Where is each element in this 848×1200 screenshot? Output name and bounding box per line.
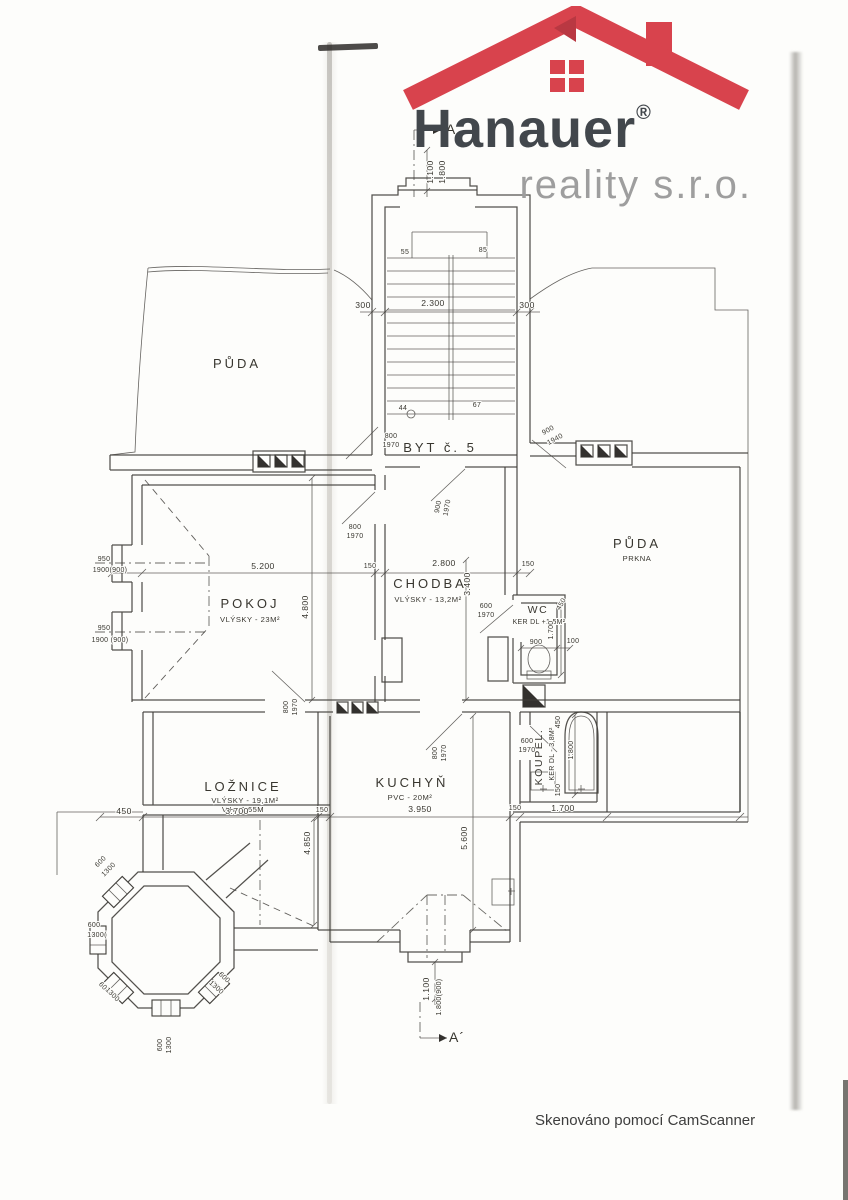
dimension-label: 450: [555, 716, 562, 729]
dimension-label: 600: [521, 738, 534, 745]
dimension-label: 1.800: [437, 160, 447, 184]
dimension-label: 1970: [383, 442, 400, 449]
builtin-cupboard: [382, 638, 402, 682]
room-sublabel-kuchyn: PVC - 20M²: [388, 793, 433, 802]
dimension-label: 1.100: [425, 160, 435, 184]
dimension-label: 450: [556, 597, 568, 611]
dimension-label: 1940: [546, 433, 564, 447]
dimension-label: 85: [479, 247, 487, 254]
dimension-label: 3.950: [408, 804, 432, 814]
dimension-label: 800: [283, 701, 290, 714]
room-sublabel-pokoj: VLÝSKY - 23M²: [220, 615, 280, 624]
room-sublabel-loznice: VLÝSKY - 19,1M²: [211, 796, 278, 805]
dimension-label: 600: [480, 603, 493, 610]
dimension-label: 800: [432, 747, 439, 760]
dimension-label: 900: [434, 500, 443, 514]
dimension-label: 150: [522, 561, 535, 568]
dimension-label: 300: [355, 300, 371, 310]
octagonal-turret: [90, 815, 318, 1016]
dimension-label: 800: [385, 433, 398, 440]
dimension-label: 1970: [443, 499, 453, 517]
dimension-label: 300: [519, 300, 535, 310]
dimension-label: 1970: [347, 533, 364, 540]
room-label-pokoj: POKOJ: [220, 596, 279, 611]
dimension-label: 1970: [478, 612, 495, 619]
room-label-puda-right: PŮDA: [613, 536, 661, 551]
room-label-wc: WC: [528, 604, 549, 616]
dimension-label: 3.700: [225, 806, 249, 816]
dimension-label: 600: [88, 922, 101, 929]
dimension-label: 900: [530, 639, 543, 646]
dimension-label: 2.300: [421, 298, 445, 308]
dimension-label: 100: [567, 638, 580, 645]
room-pokoj-walls: [112, 475, 513, 712]
dimension-label: 5.200: [251, 561, 275, 571]
dimension-label: 150: [364, 563, 377, 570]
room-sublabel-puda-right: PRKNA: [623, 554, 652, 563]
room-kuchyn-walls: [318, 712, 520, 962]
dimension-label: 44: [399, 405, 407, 412]
dimension-label: 1970: [292, 699, 299, 716]
room-label-kuchyn: KUCHYŇ: [376, 775, 449, 790]
section-label-a-prime: A´: [449, 1029, 465, 1045]
dimension-label: 450: [116, 806, 132, 816]
dimension-label: 4.850: [302, 831, 312, 855]
dimension-label: 3.400: [462, 572, 472, 596]
dimension-label: 1.700: [551, 803, 575, 813]
dimension-label: 55: [401, 249, 409, 256]
toilet: [528, 645, 550, 673]
dimension-label: 600: [157, 1039, 164, 1052]
dimension-label: 1.800(900): [436, 979, 443, 1016]
dimension-label: 1900(900): [93, 567, 128, 574]
scanned-floorplan-page: PŮDAPŮDAPRKNABYT č. 5POKOJVLÝSKY - 23M²C…: [0, 0, 848, 1200]
camscanner-note: Skenováno pomocí CamScanner: [535, 1112, 755, 1129]
staircase: [372, 178, 530, 455]
hall-cupboard: [488, 637, 508, 681]
dimension-label: 67: [473, 402, 481, 409]
room-sublabel-koupelna: KER DL - 3,8M²: [549, 727, 556, 781]
dimension-label: 900: [541, 425, 555, 437]
dimension-label: 2.800: [432, 558, 456, 568]
dimension-label: 150: [555, 784, 562, 797]
dimension-label: 1300(: [87, 932, 107, 939]
dimension-label: 950: [98, 556, 111, 563]
unit-label: BYT č. 5: [403, 440, 477, 455]
dimension-label: 1.100: [421, 977, 431, 1001]
dimension-label: 1300: [166, 1037, 173, 1054]
room-label-koupelna: KOUPEL.: [533, 729, 545, 786]
dimension-label: 1.700: [548, 620, 555, 639]
dimension-label: 800: [349, 524, 362, 531]
dimension-label: 1970: [519, 747, 536, 754]
dimension-label: 1900 (900): [92, 637, 129, 644]
room-label-puda-left: PŮDA: [213, 356, 261, 371]
section-label-a: A: [446, 121, 456, 137]
floorplan-drawing: PŮDAPŮDAPRKNABYT č. 5POKOJVLÝSKY - 23M²C…: [0, 0, 848, 1200]
dimension-label: 950: [98, 625, 111, 632]
dimension-label: 1.800: [568, 740, 575, 759]
dimension-label: 5.600: [459, 826, 469, 850]
dimension-label: 4.800: [300, 595, 310, 619]
room-label-loznice: LOŽNICE: [204, 779, 281, 794]
stair-treads: [387, 258, 515, 414]
dimension-label: 150: [509, 805, 522, 812]
room-sublabel-chodba: VLÝSKY - 13,2M²: [394, 595, 461, 604]
plan-annotations: PŮDAPŮDAPRKNABYT č. 5POKOJVLÝSKY - 23M²C…: [87, 121, 661, 1053]
dimension-label: 1970: [441, 745, 448, 762]
room-label-chodba: CHODBA: [393, 576, 467, 591]
room-sublabel-wc: KER DL +1,5M²: [513, 619, 566, 626]
dimension-label: 150: [316, 807, 329, 814]
